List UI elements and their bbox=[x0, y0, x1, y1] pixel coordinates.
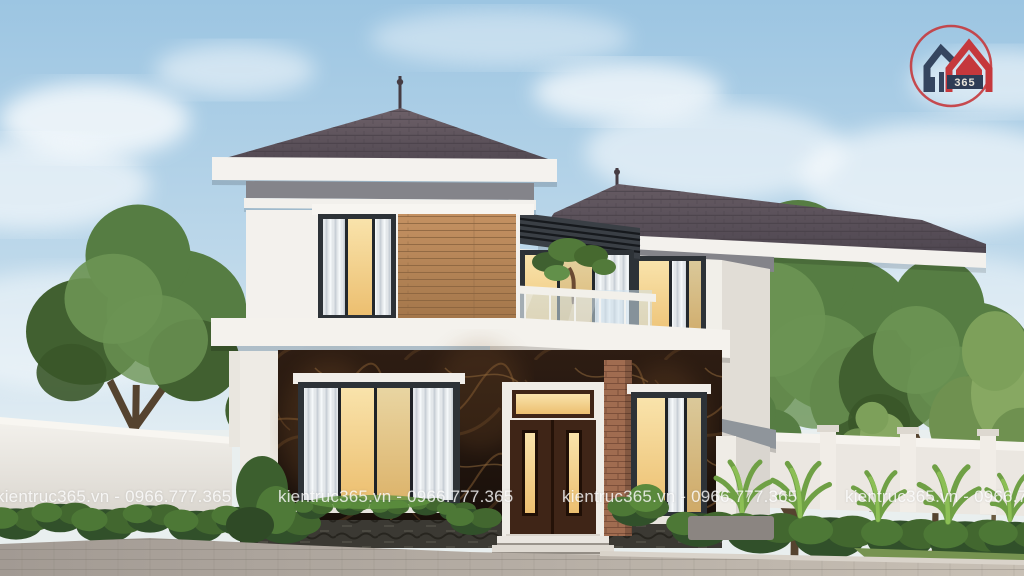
upper-left-window bbox=[318, 214, 396, 320]
window-ledge bbox=[312, 204, 534, 215]
brand-logo: 365 bbox=[903, 20, 999, 116]
main-roof-fascia bbox=[212, 157, 557, 182]
wood-cladding-panel bbox=[398, 214, 516, 322]
entrance-door bbox=[510, 420, 596, 536]
scene-svg bbox=[0, 0, 1024, 576]
frieze-band bbox=[246, 181, 534, 200]
entrance bbox=[502, 382, 604, 540]
transom-window bbox=[512, 390, 594, 418]
render-canvas: kientruc365.vn - 0966.777.365 kientruc36… bbox=[0, 0, 1024, 576]
ground-left-window bbox=[293, 373, 465, 513]
cloud bbox=[155, 44, 315, 96]
cloud bbox=[370, 10, 630, 66]
paving-dark-patch bbox=[688, 516, 774, 540]
logo-text: 365 bbox=[954, 77, 975, 89]
